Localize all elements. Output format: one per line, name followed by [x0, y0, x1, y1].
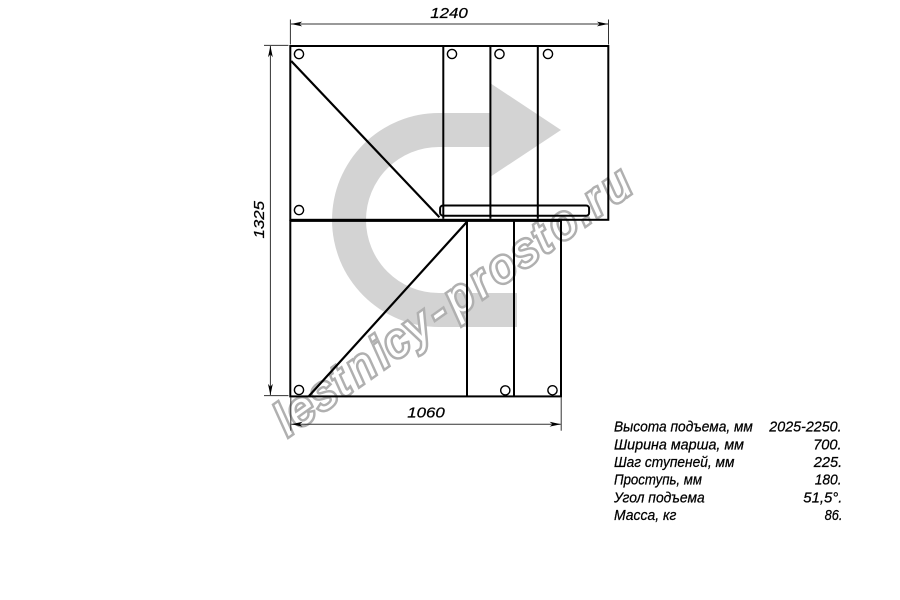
svg-text:51,5°.: 51,5°.	[803, 490, 842, 506]
svg-text:Масса, кг: Масса, кг	[614, 508, 676, 524]
svg-text:Шаг ступеней, мм: Шаг ступеней, мм	[614, 455, 734, 471]
svg-text:180.: 180.	[815, 473, 842, 489]
svg-text:86.: 86.	[825, 508, 843, 524]
svg-text:lestnicy-prosto.ru: lestnicy-prosto.ru	[264, 156, 641, 444]
svg-text:Проступь, мм: Проступь, мм	[614, 473, 702, 489]
svg-text:Ширина марша, мм: Ширина марша, мм	[614, 437, 744, 453]
svg-text:Угол подъема: Угол подъема	[613, 490, 705, 506]
svg-text:Высота подъема, мм: Высота подъема, мм	[614, 420, 753, 436]
svg-text:2025-2250.: 2025-2250.	[768, 420, 841, 436]
svg-text:1325: 1325	[251, 200, 268, 238]
svg-text:1060: 1060	[407, 405, 445, 422]
svg-text:225.: 225.	[813, 455, 842, 471]
svg-text:1240: 1240	[430, 5, 468, 22]
svg-text:700.: 700.	[813, 437, 841, 453]
